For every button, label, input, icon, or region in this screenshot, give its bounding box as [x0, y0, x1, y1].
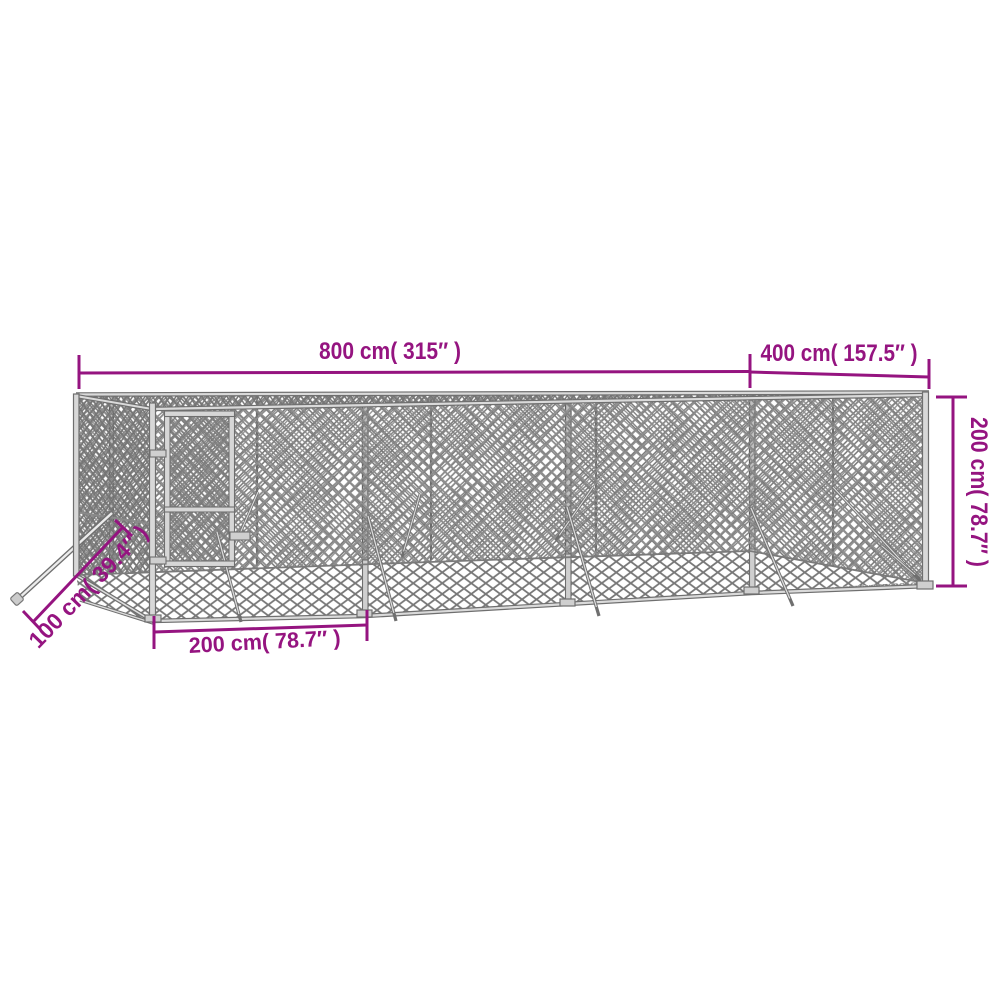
svg-text:200 cm( 78.7″ ): 200 cm( 78.7″ ) [965, 417, 992, 567]
svg-text:400 cm( 157.5″ ): 400 cm( 157.5″ ) [761, 340, 918, 367]
svg-text:800 cm( 315″ ): 800 cm( 315″ ) [319, 338, 461, 365]
